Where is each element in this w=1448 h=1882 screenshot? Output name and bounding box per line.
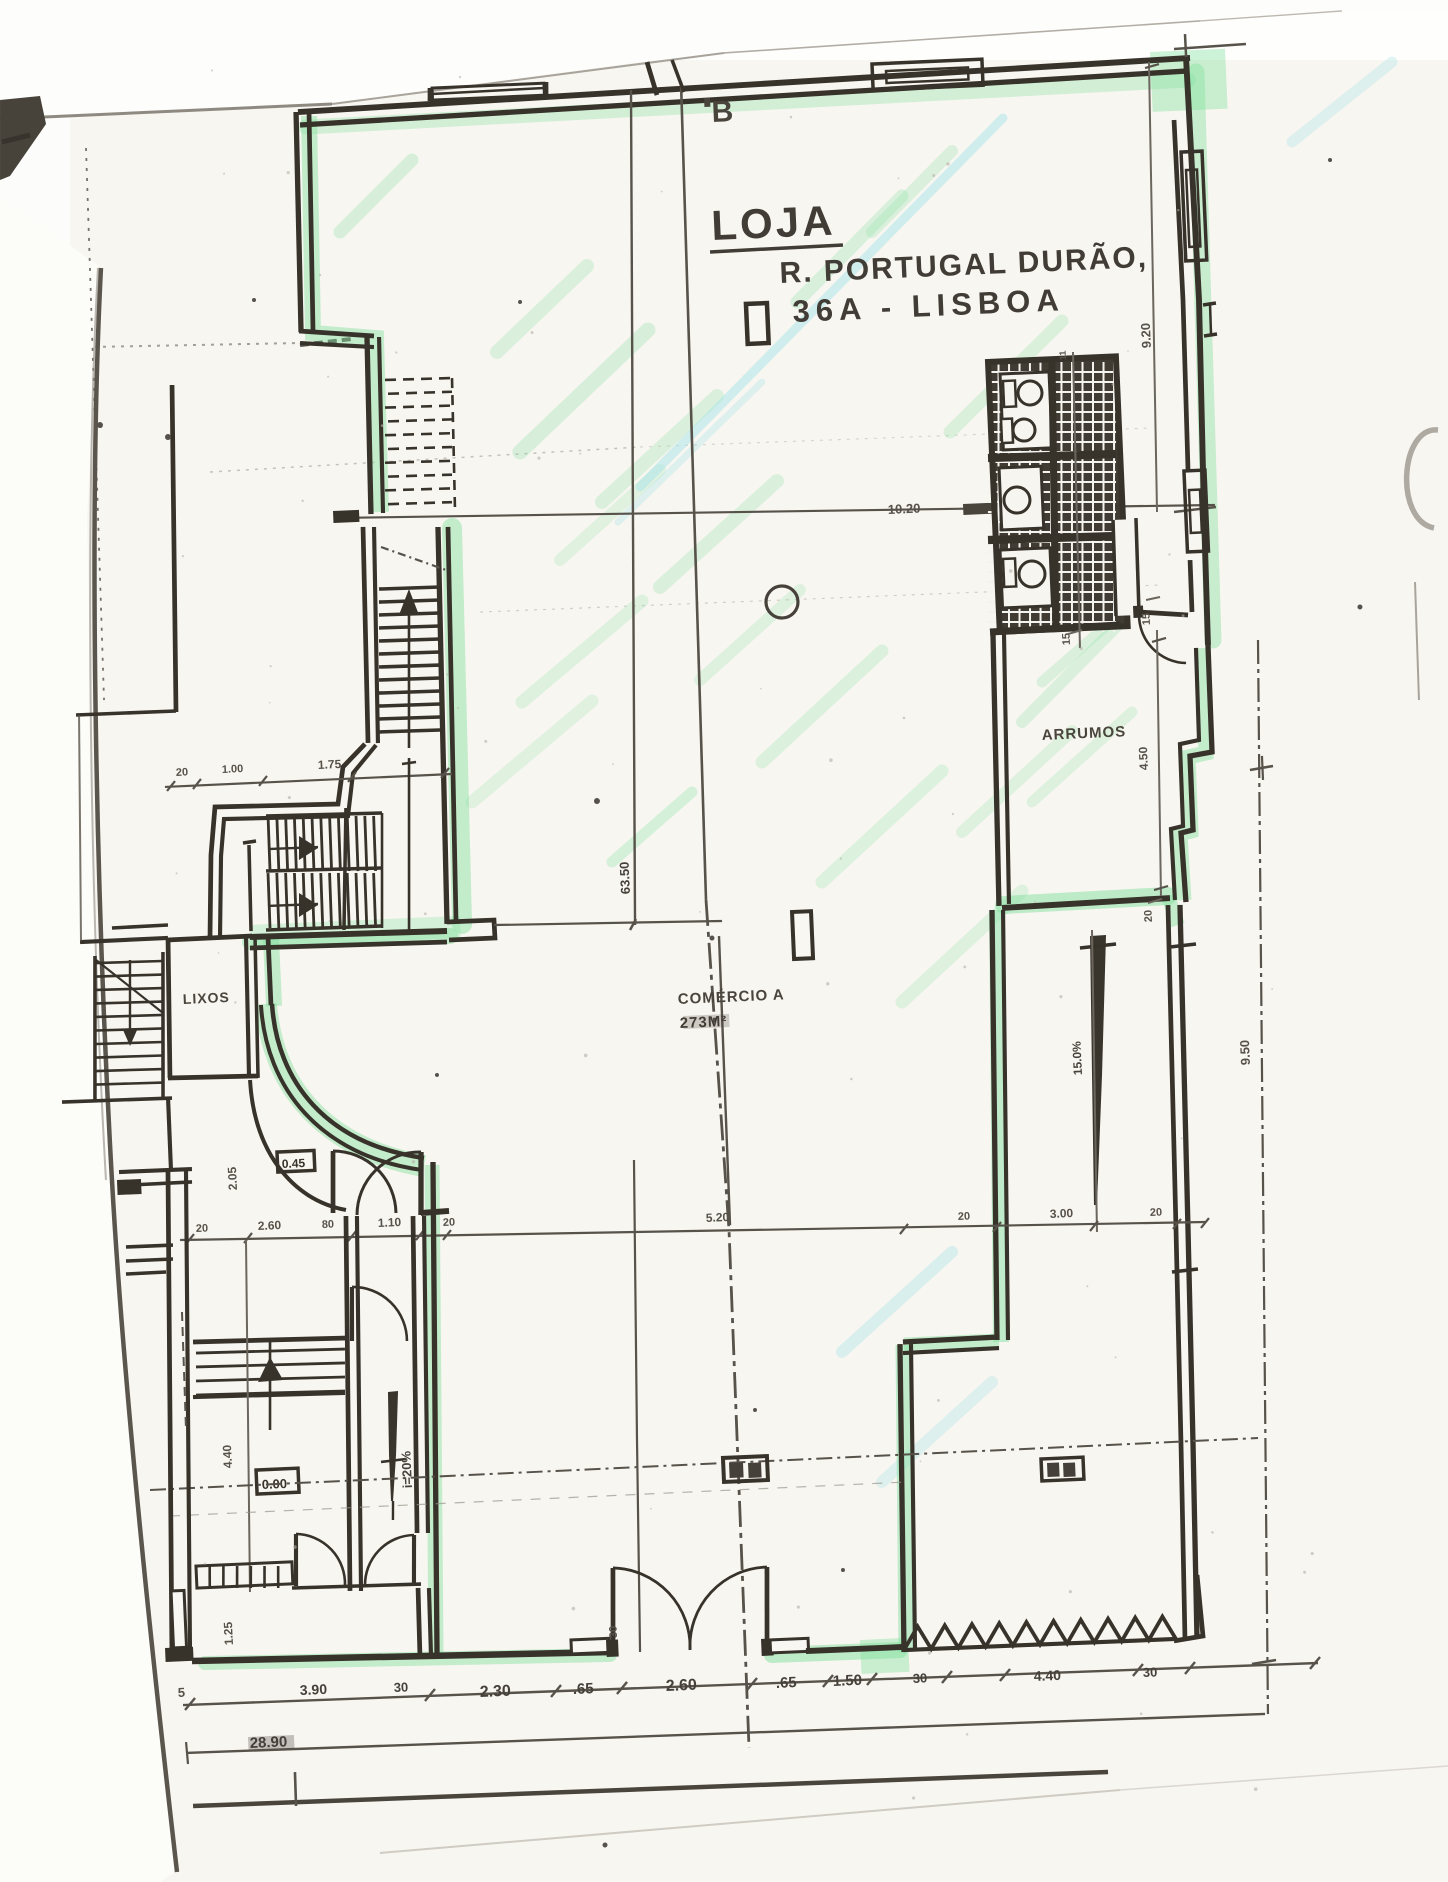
svg-text:2.30: 2.30 xyxy=(479,1683,511,1701)
svg-text:20: 20 xyxy=(443,1217,456,1230)
svg-text:5: 5 xyxy=(177,1685,185,1700)
svg-text:10.20: 10.20 xyxy=(888,501,921,517)
svg-text:0.45: 0.45 xyxy=(282,1156,306,1171)
svg-text:20: 20 xyxy=(176,766,189,779)
svg-text:30: 30 xyxy=(912,1670,927,1686)
svg-text:B: B xyxy=(711,95,734,129)
svg-text:15.0%: 15.0% xyxy=(1070,1041,1085,1076)
svg-text:20: 20 xyxy=(958,1210,971,1223)
svg-text:2.60: 2.60 xyxy=(257,1218,281,1233)
svg-text:30: 30 xyxy=(607,1626,620,1639)
svg-text:.65: .65 xyxy=(572,1680,594,1698)
svg-text:3.90: 3.90 xyxy=(299,1681,327,1698)
svg-text:1.10: 1.10 xyxy=(377,1215,401,1230)
svg-text:30: 30 xyxy=(393,1679,408,1695)
svg-text:LOJA: LOJA xyxy=(710,197,836,249)
svg-text:2.05: 2.05 xyxy=(225,1166,240,1190)
svg-text:20: 20 xyxy=(1142,910,1155,923)
svg-text:5.20: 5.20 xyxy=(705,1210,729,1225)
svg-text:1.50: 1.50 xyxy=(832,1672,862,1690)
svg-text:80: 80 xyxy=(322,1219,335,1232)
svg-text:1.75: 1.75 xyxy=(318,757,342,772)
svg-text:9.20: 9.20 xyxy=(1138,323,1154,349)
svg-text:1.25: 1.25 xyxy=(221,1621,236,1645)
svg-text:1.00: 1.00 xyxy=(222,763,244,776)
svg-text:.65: .65 xyxy=(775,1674,797,1692)
svg-text:4.50: 4.50 xyxy=(1136,746,1151,770)
svg-text:i=20%: i=20% xyxy=(398,1450,415,1488)
svg-text:63.50: 63.50 xyxy=(617,861,633,894)
svg-text:20: 20 xyxy=(1150,1206,1163,1219)
svg-text:4.40: 4.40 xyxy=(1033,1667,1061,1684)
svg-text:20: 20 xyxy=(196,1223,209,1236)
svg-text:3.00: 3.00 xyxy=(1050,1206,1074,1221)
svg-text:15: 15 xyxy=(1061,633,1074,646)
svg-text:LIXOS: LIXOS xyxy=(182,989,230,1007)
svg-text:11: 11 xyxy=(1058,350,1068,360)
svg-text:15: 15 xyxy=(1141,613,1154,626)
svg-text:4.40: 4.40 xyxy=(220,1444,235,1468)
svg-text:2.60: 2.60 xyxy=(665,1677,697,1695)
svg-text:9.50: 9.50 xyxy=(1237,1040,1253,1066)
svg-text:30: 30 xyxy=(1142,1664,1157,1680)
